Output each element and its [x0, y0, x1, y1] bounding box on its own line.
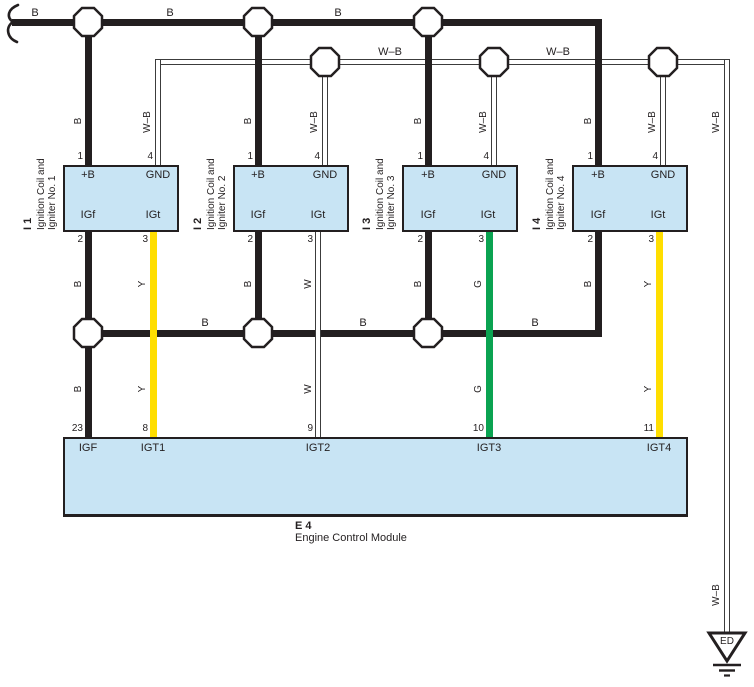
- terminal-gnd: GND: [146, 169, 170, 181]
- terminal-gnd: GND: [482, 169, 506, 181]
- coil-3-id: I 3: [361, 218, 373, 230]
- wire-label-wb: W–B: [711, 111, 723, 133]
- wire-y-igt4: [656, 232, 663, 437]
- terminal-gnd: GND: [651, 169, 675, 181]
- wire-label-wb: W–B: [647, 111, 659, 133]
- ecm-terminal-igt4: IGT4: [647, 442, 671, 454]
- pin-number: 1: [247, 151, 253, 163]
- coil-1-name: Igniter No. 1: [47, 176, 59, 230]
- terminal-igf: IGf: [251, 209, 266, 221]
- terminal-plusb: +B: [591, 169, 605, 181]
- wire-label-wb: W–B: [309, 111, 321, 133]
- terminal-plusb: +B: [421, 169, 435, 181]
- wire-label-b: B: [201, 317, 208, 329]
- wire-label-b: B: [359, 317, 366, 329]
- ecm-name: Engine Control Module: [295, 532, 407, 544]
- ecm-terminal-igt1: IGT1: [141, 442, 165, 454]
- wire-label-g: G: [473, 385, 485, 393]
- wire-label-y: Y: [137, 386, 149, 393]
- pin-number: 2: [247, 234, 253, 246]
- pin-number: 4: [314, 151, 320, 163]
- coil-4-id: I 4: [531, 218, 543, 230]
- terminal-igf: IGf: [81, 209, 96, 221]
- wire-label-b: B: [583, 281, 595, 288]
- octagon-junction-icon: [412, 6, 444, 38]
- wire-b-plusb-coil1: [85, 22, 92, 165]
- ecm-pin-number: 10: [473, 423, 484, 435]
- ecm-terminal-igf: IGF: [79, 442, 97, 454]
- octagon-junction-icon: [242, 317, 274, 349]
- terminal-plusb: +B: [81, 169, 95, 181]
- terminal-igt: IGt: [651, 209, 666, 221]
- octagon-junction-icon: [72, 6, 104, 38]
- wire-break-icon: [1, 0, 25, 48]
- wire-label-y: Y: [643, 281, 655, 288]
- wire-label-b: B: [413, 118, 425, 125]
- wire-label-b: B: [413, 281, 425, 288]
- wire-label-b: B: [583, 118, 595, 125]
- pin-number: 4: [652, 151, 658, 163]
- pin-number: 3: [307, 234, 313, 246]
- wire-label-y: Y: [137, 281, 149, 288]
- wire-wb-ground-bus: [155, 59, 730, 65]
- ignition-wiring-diagram: ED B B B W–B W–B B B B B W–B B W–B B W–B…: [0, 0, 754, 687]
- wire-label-b: B: [31, 7, 38, 19]
- wire-b-plusb-coil3: [425, 22, 432, 165]
- wire-label-w: W: [303, 279, 315, 288]
- coil-1-id: I 1: [22, 218, 34, 230]
- ecm-id: E 4: [295, 520, 312, 532]
- octagon-junction-icon: [72, 317, 104, 349]
- wire-label-b: B: [243, 281, 255, 288]
- coil-2-name: Igniter No. 2: [217, 176, 229, 230]
- pin-number: 4: [147, 151, 153, 163]
- wire-label-b: B: [531, 317, 538, 329]
- wire-label-wb: W–B: [546, 46, 570, 58]
- wire-label-wb: W–B: [711, 584, 723, 606]
- terminal-igf: IGf: [421, 209, 436, 221]
- coil-3-name: Igniter No. 3: [386, 176, 398, 230]
- ecm-terminal-igt3: IGT3: [477, 442, 501, 454]
- wire-wb-gnd-coil1: [155, 60, 161, 165]
- octagon-junction-icon: [242, 6, 274, 38]
- terminal-igt: IGt: [481, 209, 496, 221]
- pin-number: 2: [77, 234, 83, 246]
- wire-y-igt1: [150, 232, 157, 437]
- ground-symbol: ED: [703, 629, 751, 681]
- pin-number: 3: [478, 234, 484, 246]
- pin-number: 2: [417, 234, 423, 246]
- wire-wb-to-ground: [724, 60, 730, 635]
- ecm-pin-number: 8: [142, 423, 148, 435]
- ecm-pin-number: 23: [72, 423, 83, 435]
- octagon-junction-icon: [647, 46, 679, 78]
- pin-number: 2: [587, 234, 593, 246]
- pin-number: 1: [77, 151, 83, 163]
- wire-b-plusb-coil2: [255, 22, 262, 165]
- wire-label-wb: W–B: [142, 111, 154, 133]
- terminal-plusb: +B: [251, 169, 265, 181]
- wire-label-b: B: [243, 118, 255, 125]
- wire-label-b: B: [73, 118, 85, 125]
- wire-label-b: B: [73, 281, 85, 288]
- octagon-junction-icon: [412, 317, 444, 349]
- wire-label-b: B: [334, 7, 341, 19]
- wire-w-igt2: [315, 232, 321, 437]
- pin-number: 3: [648, 234, 654, 246]
- pin-number: 1: [417, 151, 423, 163]
- ecm-pin-number: 9: [307, 423, 313, 435]
- coil-2-id: I 2: [192, 218, 204, 230]
- ecm-pin-number: 11: [644, 423, 654, 435]
- octagon-junction-icon: [309, 46, 341, 78]
- pin-number: 3: [142, 234, 148, 246]
- terminal-gnd: GND: [313, 169, 337, 181]
- wire-label-g: G: [473, 280, 485, 288]
- wire-label-b: B: [166, 7, 173, 19]
- wire-label-y: Y: [643, 386, 655, 393]
- coil-4-name: Igniter No. 4: [556, 176, 568, 230]
- terminal-igt: IGt: [311, 209, 326, 221]
- wire-g-igt3: [486, 232, 493, 437]
- ground-code: ED: [720, 636, 734, 647]
- terminal-igf: IGf: [591, 209, 606, 221]
- wire-b-igf-coil4: [595, 232, 602, 336]
- wire-label-w: W: [303, 384, 315, 393]
- octagon-junction-icon: [478, 46, 510, 78]
- terminal-igt: IGt: [146, 209, 161, 221]
- wire-b-igf-bus: [85, 330, 602, 337]
- pin-number: 1: [587, 151, 593, 163]
- ecm-terminal-igt2: IGT2: [306, 442, 330, 454]
- pin-number: 4: [483, 151, 489, 163]
- wire-b-plusb-coil4: [595, 19, 602, 166]
- wire-label-b: B: [73, 386, 85, 393]
- wire-label-wb: W–B: [478, 111, 490, 133]
- wire-label-wb: W–B: [378, 46, 402, 58]
